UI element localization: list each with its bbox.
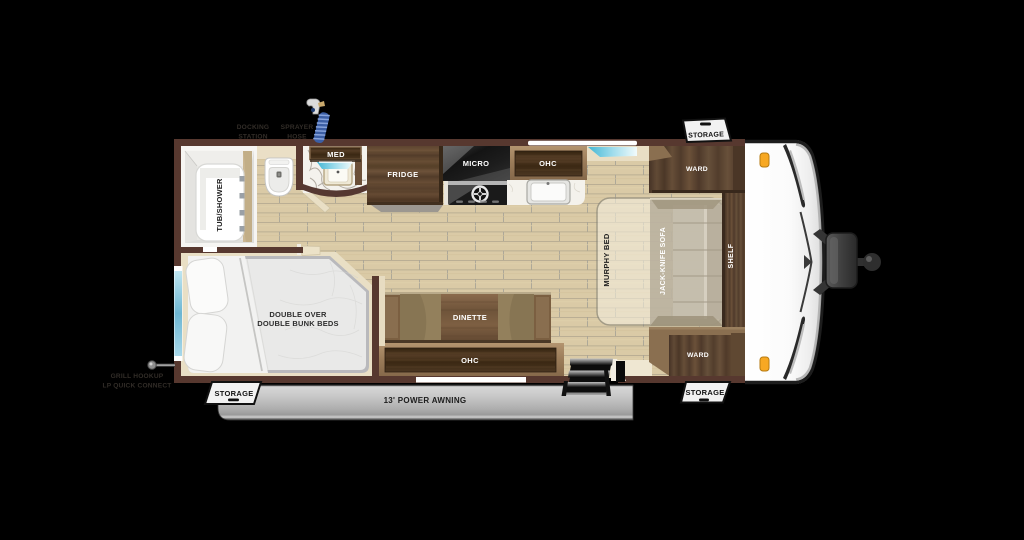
svg-text:STORAGE: STORAGE: [685, 388, 724, 397]
svg-text:HOSE: HOSE: [287, 134, 307, 141]
svg-text:OHC: OHC: [539, 159, 557, 168]
svg-text:13' POWER AWNING: 13' POWER AWNING: [384, 396, 467, 405]
svg-text:STORAGE: STORAGE: [214, 389, 253, 398]
svg-text:LP QUICK CONNECT: LP QUICK CONNECT: [102, 383, 171, 390]
svg-text:OHC: OHC: [461, 356, 479, 365]
svg-text:GRILL HOOKUP: GRILL HOOKUP: [111, 373, 164, 380]
svg-text:FRIDGE: FRIDGE: [387, 170, 418, 179]
svg-text:DOUBLE BUNK BEDS: DOUBLE BUNK BEDS: [257, 319, 339, 328]
svg-text:STATION: STATION: [238, 134, 267, 141]
svg-text:WARD: WARD: [687, 352, 709, 359]
svg-text:JACK-KNIFE SOFA: JACK-KNIFE SOFA: [660, 227, 667, 295]
svg-text:MED: MED: [327, 150, 345, 159]
svg-text:DINETTE: DINETTE: [453, 313, 487, 322]
svg-text:SHELF: SHELF: [728, 243, 735, 268]
svg-text:TUB/SHOWER: TUB/SHOWER: [215, 178, 224, 232]
svg-text:MURPHY BED: MURPHY BED: [602, 233, 611, 287]
svg-text:DOUBLE OVER: DOUBLE OVER: [269, 310, 327, 319]
svg-text:WARD: WARD: [686, 166, 708, 173]
svg-text:DOCKING: DOCKING: [237, 124, 270, 131]
svg-text:STORAGE: STORAGE: [688, 131, 724, 139]
svg-text:MICRO: MICRO: [463, 159, 490, 168]
svg-text:SPRAYER: SPRAYER: [281, 124, 314, 131]
